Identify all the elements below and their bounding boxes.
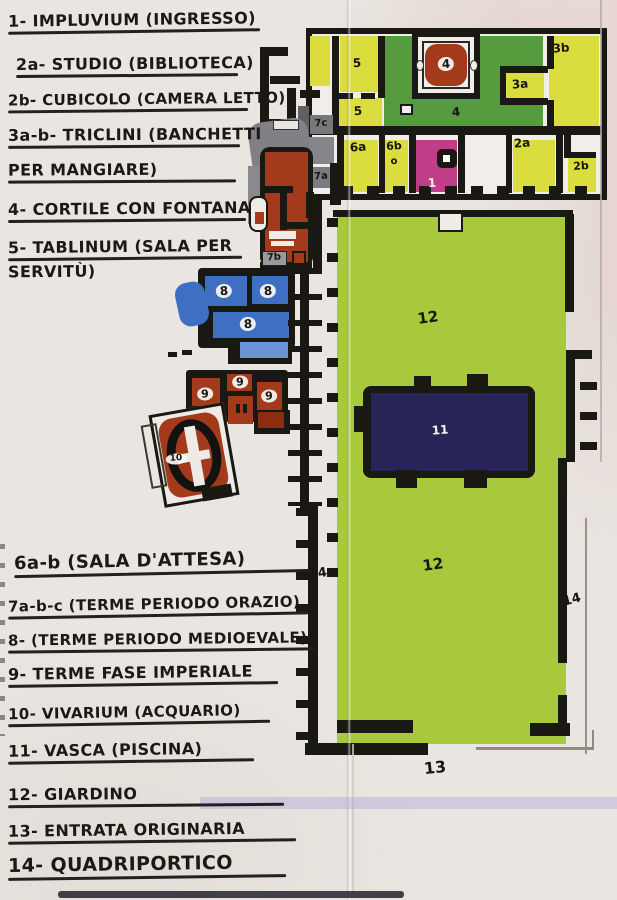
legend-item-text: 2b- CUBICOLO (CAMERA LETTO) [8,89,286,110]
legend-item-8: SERVITÙ) [8,262,96,282]
map-label-13: 13 [423,759,447,777]
legend-item-7: 5- TABLINUM (SALA PER [8,236,242,261]
map-label-4: 4 [451,106,460,119]
legend-item-text: 13- ENTRATA ORIGINARIA [8,819,245,841]
map-label-3a: 3a [511,77,528,90]
map-label-2a: 2a [513,136,530,149]
legend-item-5: PER MANGIARE) [8,159,236,183]
legend-underline [16,73,238,77]
legend-item-text: 2a- STUDIO (BIBLIOTECA) [16,53,254,74]
map-label-5: 5 [353,105,362,118]
legend-underline [8,144,240,148]
legend-item-11: 8- (TERME PERIODO MEDIOEVALE) [8,627,314,653]
legend-item-text: PER MANGIARE) [8,160,158,180]
map-label-6a: 6a [349,140,366,153]
map-label-12: 12 [422,556,445,574]
legend-item-4: 3a-b- TRICLINI (BANCHETTI [8,124,262,148]
scanned-plan-paper: 55443a3b6a6bo12a2b7c7a7b8889991011121213… [0,0,617,900]
map-label-12: 12 [417,309,440,327]
legend-item-text: 5- TABLINUM (SALA PER [8,236,233,257]
legend-item-text: 9- TERME FASE IMPERIALE [8,661,253,683]
map-label-3b: 3b [552,41,570,54]
legend-item-15: 12- GIARDINO [8,783,284,808]
map-label-5: 5 [352,57,361,70]
map-label-2b: 2b [573,160,589,172]
legend-item-14: 11- VASCA (PISCINA) [8,738,254,764]
legend-item-text: 11- VASCA (PISCINA) [8,739,203,761]
map-label-11: 11 [431,423,448,436]
legend-underline [8,179,236,183]
map-label-7c: 7c [314,119,328,130]
legend-item-text: 8- (TERME PERIODO MEDIOEVALE) [8,628,308,649]
map-label-14: 14 [308,566,328,582]
legend-item-17: 14- QUADRIPORTICO [8,851,286,880]
legend-item-text: 3a-b- TRICLINI (BANCHETTI [8,124,262,145]
legend-item-text: SERVITÙ) [8,262,96,282]
legend-item-13: 10- VIVARIUM (ACQUARIO) [8,700,270,727]
legend-item-2: 2a- STUDIO (BIBLIOTECA) [16,53,254,78]
legend-item-9: 6a-b (SALA D'ATTESA) [14,547,314,578]
legend-item-6: 4- CORTILE CON FONTANA [8,198,251,223]
map-label-1: 1 [427,177,436,190]
map-label-7a: 7a [314,172,328,183]
map-label-6b: 6b [386,140,402,152]
map-label-o: o [390,157,398,167]
legend-item-text: 12- GIARDINO [8,784,137,804]
legend-item-10: 7a-b-c (TERME PERIODO ORAZIO) [8,591,308,619]
map-label-7b: 7b [267,253,282,264]
legend-item-3: 2b- CUBICOLO (CAMERA LETTO) [8,88,286,113]
legend-item-text: 14- QUADRIPORTICO [8,852,233,877]
legend-item-12: 9- TERME FASE IMPERIALE [8,661,278,687]
legend-item-text: 1- IMPLUVIUM (INGRESSO) [8,8,256,30]
legend-item-text: 4- CORTILE CON FONTANA [8,198,251,219]
legend-item-1: 1- IMPLUVIUM (INGRESSO) [8,8,260,34]
legend-item-16: 13- ENTRATA ORIGINARIA [8,818,296,844]
